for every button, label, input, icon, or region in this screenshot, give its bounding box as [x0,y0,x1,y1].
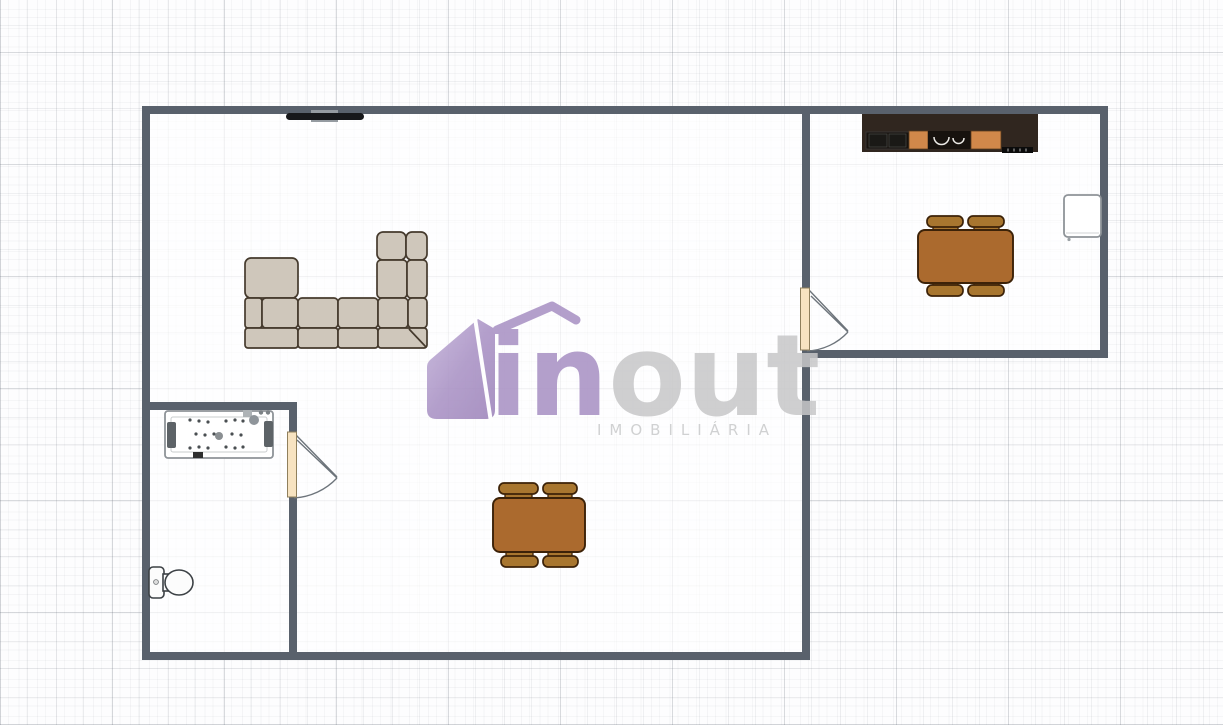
cabinet [971,131,1001,149]
drain [215,432,223,440]
door-panel [288,432,297,497]
door-panel [801,288,810,350]
bathtub [165,410,273,458]
wall-divider-upper [802,106,810,288]
tv-screen [286,113,364,120]
cabinet [909,131,928,149]
headrest [264,421,273,447]
wall-top [142,106,1108,114]
floor-plan-drawing [0,0,1223,725]
kitchen-counter [862,114,1038,153]
wall-bathroom-right-lower [289,497,297,660]
spout-plate [243,410,252,417]
tub-control [193,452,203,458]
wall-bathroom-top [142,402,297,410]
refrigerator [1064,195,1101,241]
toilet [149,567,193,598]
wall-divider-lower [802,350,810,660]
table-top [918,230,1013,283]
headrest [167,422,176,448]
wall-bathroom-right-upper [289,402,297,432]
vent-grille [1002,147,1033,153]
floor-plan: inout IMOBILIÁRIA [0,0,1223,725]
wall-kitchen-bottom [802,350,1108,358]
table-top [493,498,585,552]
toilet-bowl [165,570,193,595]
wall-bottom [142,652,810,660]
faucet [249,415,259,425]
